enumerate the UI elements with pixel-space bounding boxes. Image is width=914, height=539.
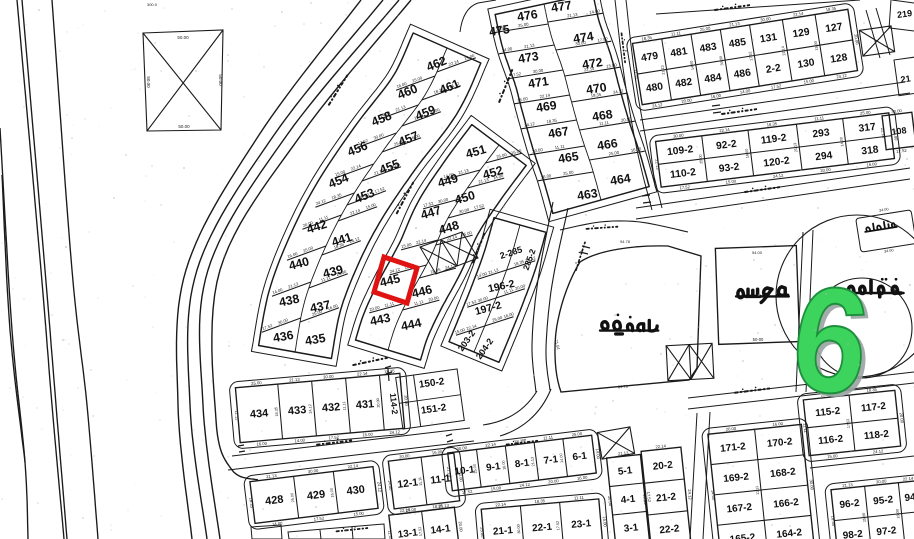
svg-text:5-1: 5-1 <box>617 465 633 477</box>
svg-text:50.00: 50.00 <box>218 74 223 86</box>
svg-text:18.35: 18.35 <box>384 368 396 374</box>
svg-text:94: 94 <box>904 492 914 504</box>
svg-text:50.00: 50.00 <box>178 124 190 129</box>
svg-text:25.00: 25.00 <box>479 527 485 539</box>
svg-text:50-00: 50-00 <box>753 337 764 342</box>
svg-text:98-2: 98-2 <box>842 529 863 539</box>
svg-text:429: 429 <box>306 488 326 502</box>
svg-text:11.11: 11.11 <box>387 530 393 539</box>
svg-text:432: 432 <box>321 401 340 415</box>
svg-text:50.00: 50.00 <box>177 35 189 40</box>
svg-text:433: 433 <box>287 404 306 418</box>
svg-text:294: 294 <box>815 150 834 163</box>
svg-text:94.78: 94.78 <box>620 239 631 244</box>
svg-text:2-2: 2-2 <box>765 63 782 76</box>
svg-text:15.00: 15.00 <box>362 431 374 437</box>
svg-text:219: 219 <box>896 8 912 20</box>
svg-text:25.00: 25.00 <box>251 380 263 386</box>
svg-text:18.35: 18.35 <box>534 498 546 504</box>
svg-text:95-2: 95-2 <box>873 494 894 507</box>
svg-text:430: 430 <box>346 484 366 498</box>
svg-text:24.12: 24.12 <box>308 404 313 414</box>
svg-text:20-2: 20-2 <box>652 460 673 473</box>
svg-text:164-2: 164-2 <box>776 527 803 539</box>
svg-text:30.00: 30.00 <box>516 524 521 534</box>
svg-text:54.00: 54.00 <box>752 250 763 255</box>
svg-text:8-1: 8-1 <box>514 458 530 471</box>
svg-text:3-1: 3-1 <box>623 522 639 534</box>
svg-text:317: 317 <box>858 122 877 135</box>
svg-text:6-1: 6-1 <box>572 451 588 464</box>
svg-text:23-1: 23-1 <box>571 518 592 531</box>
svg-text:17.52: 17.52 <box>556 521 561 531</box>
svg-text:21-2: 21-2 <box>656 491 677 504</box>
svg-text:9-1: 9-1 <box>485 461 501 474</box>
svg-text:300.0: 300.0 <box>147 2 158 7</box>
svg-text:18.35: 18.35 <box>274 407 279 417</box>
svg-text:16.00: 16.00 <box>602 516 608 528</box>
svg-text:16.00: 16.00 <box>256 441 268 447</box>
svg-text:22-1: 22-1 <box>532 522 553 535</box>
svg-text:14.00: 14.00 <box>294 437 306 443</box>
svg-text:7-1: 7-1 <box>543 454 559 467</box>
svg-text:84.78: 84.78 <box>618 384 629 390</box>
svg-text:21-1: 21-1 <box>492 525 513 538</box>
svg-text:22-2: 22-2 <box>659 523 680 536</box>
svg-text:20.00: 20.00 <box>403 395 409 407</box>
svg-text:22.14: 22.14 <box>357 371 369 377</box>
svg-text:431: 431 <box>355 398 374 412</box>
svg-text:318: 318 <box>861 144 880 157</box>
svg-text:11.11: 11.11 <box>234 410 240 421</box>
svg-text:96-2: 96-2 <box>839 498 860 511</box>
svg-text:30.00: 30.00 <box>323 374 335 380</box>
svg-text:293: 293 <box>812 127 831 140</box>
svg-text:108: 108 <box>891 125 907 137</box>
svg-text:11.11: 11.11 <box>574 495 585 501</box>
svg-text:24.12: 24.12 <box>389 429 401 435</box>
svg-text:20.00: 20.00 <box>376 398 381 408</box>
svg-text:11.11: 11.11 <box>342 401 347 410</box>
svg-text:21.13: 21.13 <box>289 377 301 383</box>
svg-text:434: 434 <box>249 407 269 421</box>
svg-text:4-1: 4-1 <box>620 494 636 506</box>
svg-text:50.00: 50.00 <box>146 76 151 88</box>
svg-text:97-2: 97-2 <box>876 525 897 538</box>
svg-text:428: 428 <box>265 494 285 508</box>
svg-text:22.14: 22.14 <box>495 502 507 508</box>
